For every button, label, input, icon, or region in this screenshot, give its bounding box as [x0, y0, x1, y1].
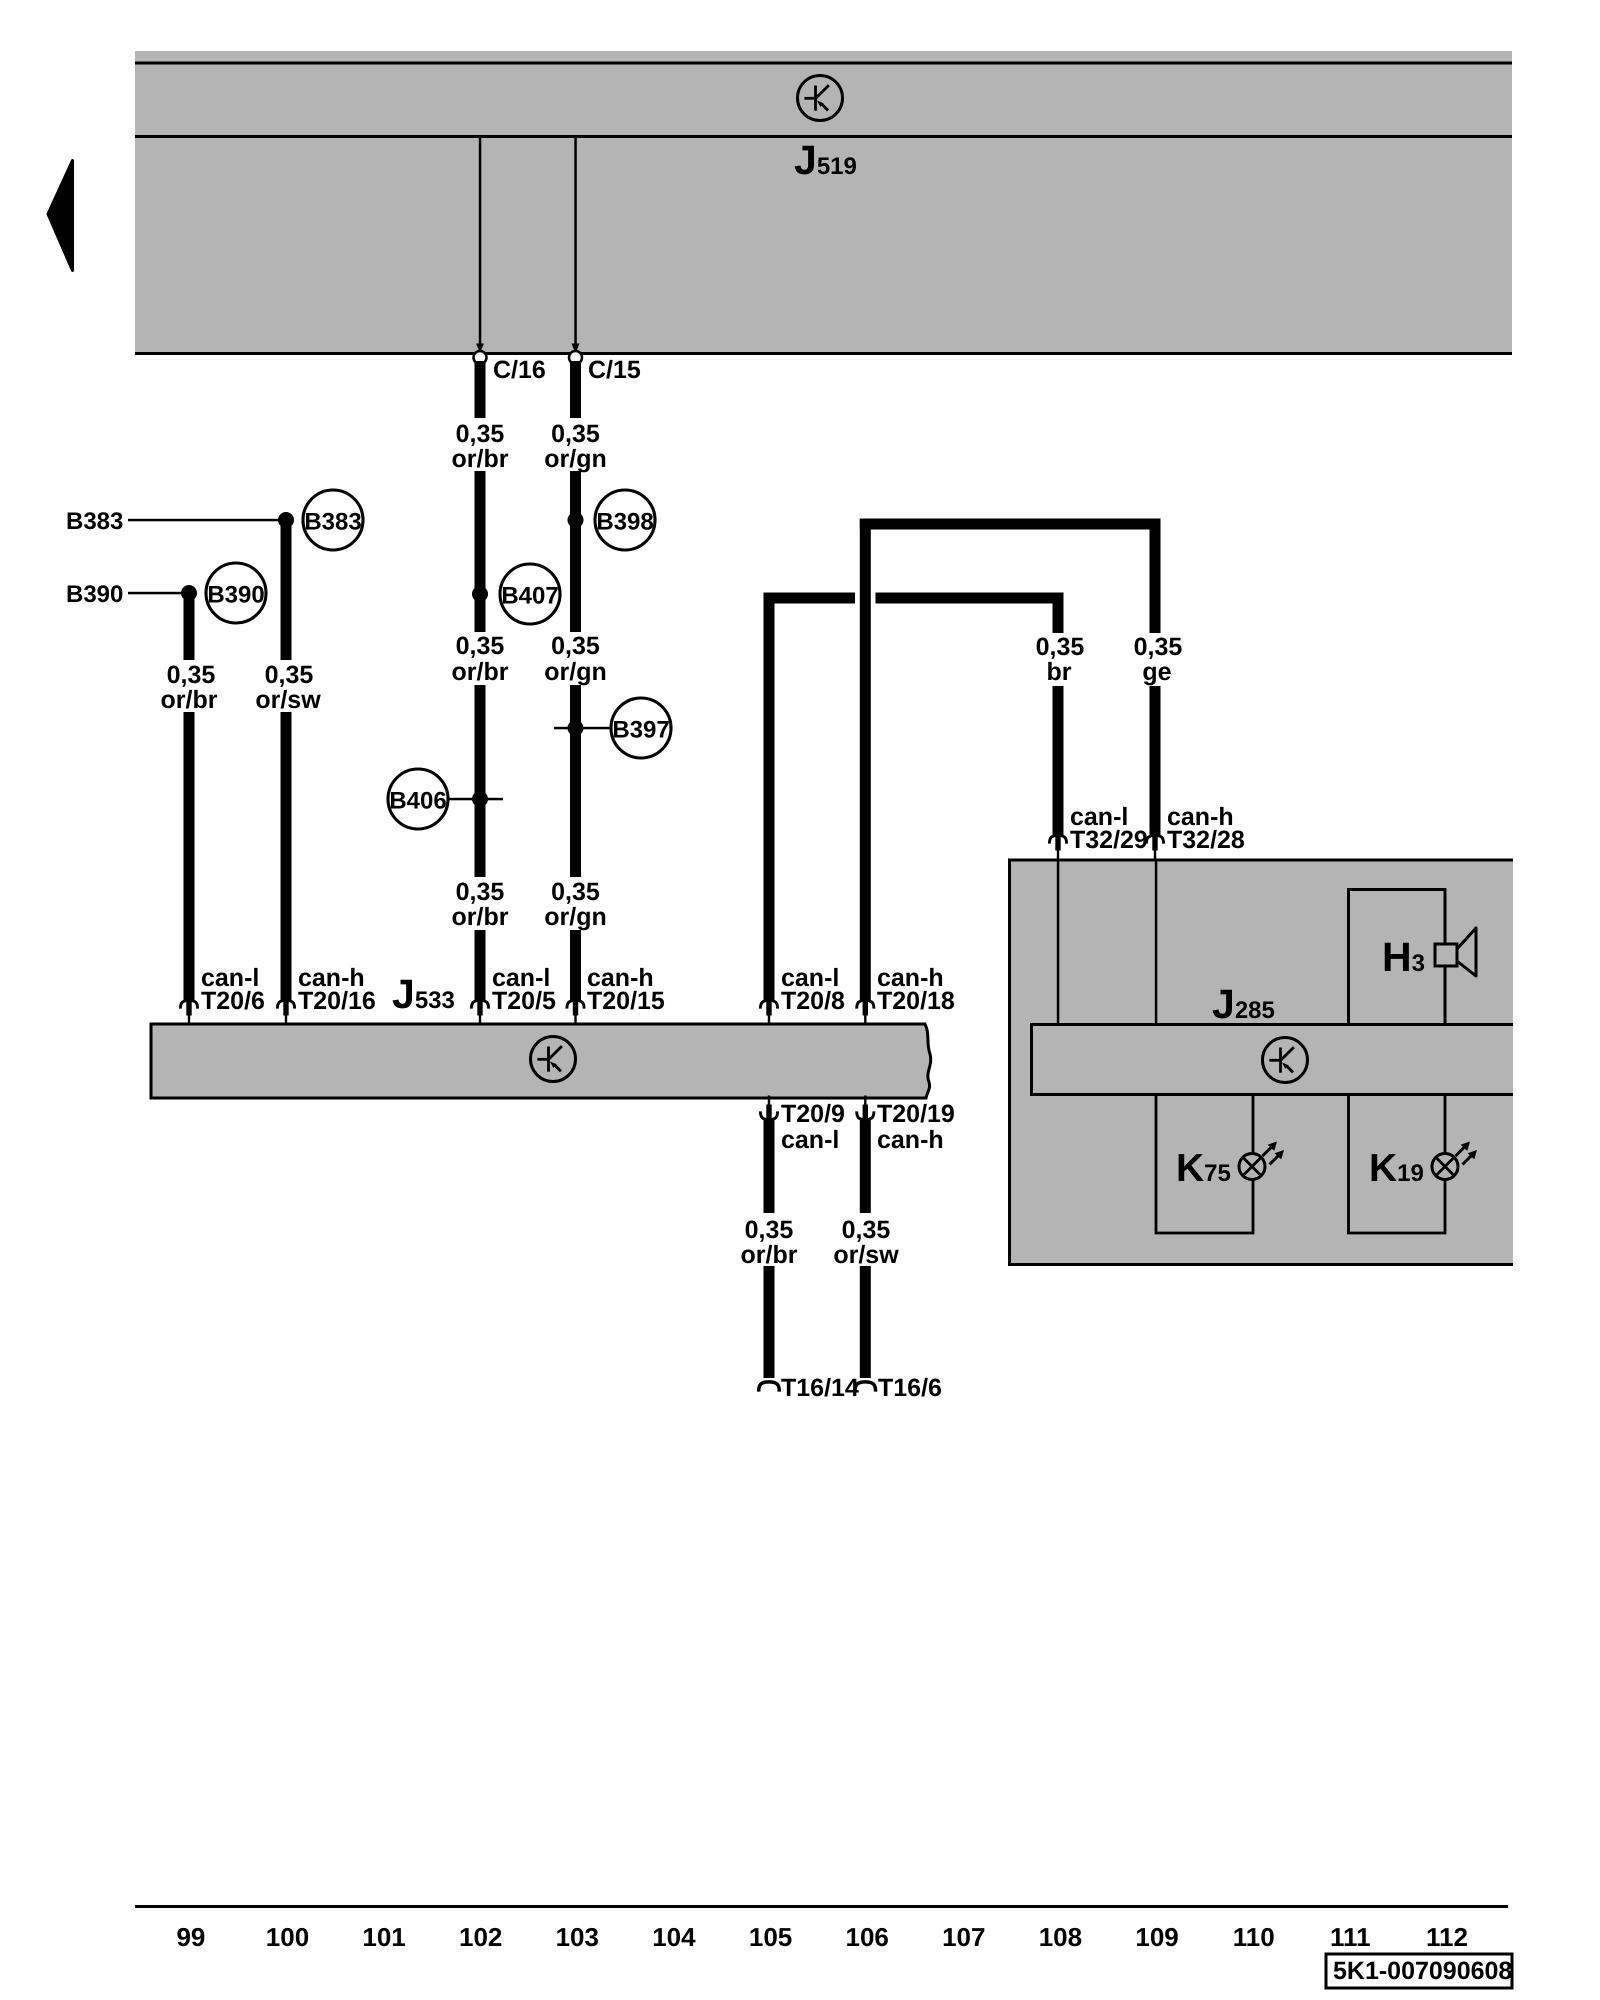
svg-text:C/16: C/16 [493, 356, 546, 384]
svg-text:T20/5: T20/5 [492, 987, 556, 1015]
svg-text:99: 99 [176, 1922, 205, 1952]
svg-text:0,35: 0,35 [551, 878, 600, 906]
svg-text:T16/6: T16/6 [878, 1374, 942, 1402]
svg-text:or/br: or/br [452, 445, 509, 473]
svg-text:0,35: 0,35 [1036, 633, 1085, 661]
svg-text:110: 110 [1233, 1922, 1275, 1952]
svg-text:106: 106 [846, 1922, 889, 1952]
svg-text:can-h: can-h [877, 1126, 944, 1154]
svg-text:5K1-007090608: 5K1-007090608 [1333, 1957, 1512, 1985]
svg-text:108: 108 [1039, 1922, 1082, 1952]
svg-text:101: 101 [362, 1922, 405, 1952]
svg-text:100: 100 [266, 1922, 309, 1952]
svg-text:B407: B407 [501, 583, 558, 610]
svg-text:B397: B397 [612, 717, 669, 744]
svg-text:T16/14: T16/14 [781, 1374, 859, 1402]
svg-text:T20/18: T20/18 [877, 987, 955, 1015]
svg-text:or/br: or/br [741, 1241, 798, 1269]
svg-text:B383: B383 [66, 508, 123, 535]
svg-text:T20/16: T20/16 [298, 987, 376, 1015]
svg-text:B390: B390 [207, 582, 264, 609]
svg-text:B383: B383 [304, 509, 361, 536]
svg-text:T20/9: T20/9 [781, 1100, 845, 1128]
svg-text:103: 103 [556, 1922, 599, 1952]
svg-text:T32/29: T32/29 [1070, 826, 1148, 854]
svg-text:ge: ge [1142, 658, 1171, 686]
svg-text:T20/8: T20/8 [781, 987, 845, 1015]
svg-text:105: 105 [749, 1922, 792, 1952]
svg-text:B390: B390 [66, 581, 123, 608]
svg-text:or/gn: or/gn [544, 445, 607, 473]
svg-text:0,35: 0,35 [1134, 633, 1183, 661]
svg-text:0,35: 0,35 [745, 1216, 794, 1244]
svg-text:or/br: or/br [452, 903, 509, 931]
svg-text:B406: B406 [389, 788, 446, 815]
svg-text:0,35: 0,35 [551, 420, 600, 448]
svg-text:0,35: 0,35 [551, 632, 600, 660]
svg-text:or/sw: or/sw [255, 686, 321, 714]
svg-text:T20/15: T20/15 [587, 987, 665, 1015]
svg-text:0,35: 0,35 [265, 661, 314, 689]
svg-text:0,35: 0,35 [456, 420, 505, 448]
svg-text:0,35: 0,35 [456, 878, 505, 906]
svg-text:B398: B398 [596, 509, 653, 536]
svg-text:T20/19: T20/19 [877, 1100, 955, 1128]
svg-text:or/br: or/br [161, 686, 218, 714]
svg-text:C/15: C/15 [588, 356, 641, 384]
svg-text:0,35: 0,35 [842, 1216, 891, 1244]
svg-text:0,35: 0,35 [456, 632, 505, 660]
svg-text:or/gn: or/gn [544, 658, 607, 686]
svg-text:112: 112 [1426, 1922, 1468, 1952]
svg-text:107: 107 [942, 1922, 985, 1952]
svg-text:109: 109 [1135, 1922, 1178, 1952]
svg-text:104: 104 [652, 1922, 696, 1952]
svg-text:111: 111 [1330, 1922, 1371, 1952]
svg-text:or/br: or/br [452, 658, 509, 686]
svg-text:T32/28: T32/28 [1167, 826, 1245, 854]
svg-text:can-l: can-l [781, 1126, 839, 1154]
svg-text:br: br [1047, 658, 1072, 686]
svg-text:102: 102 [459, 1922, 502, 1952]
svg-text:0,35: 0,35 [167, 661, 216, 689]
svg-text:T20/6: T20/6 [201, 987, 265, 1015]
svg-text:or/gn: or/gn [544, 903, 607, 931]
svg-text:or/sw: or/sw [833, 1241, 899, 1269]
